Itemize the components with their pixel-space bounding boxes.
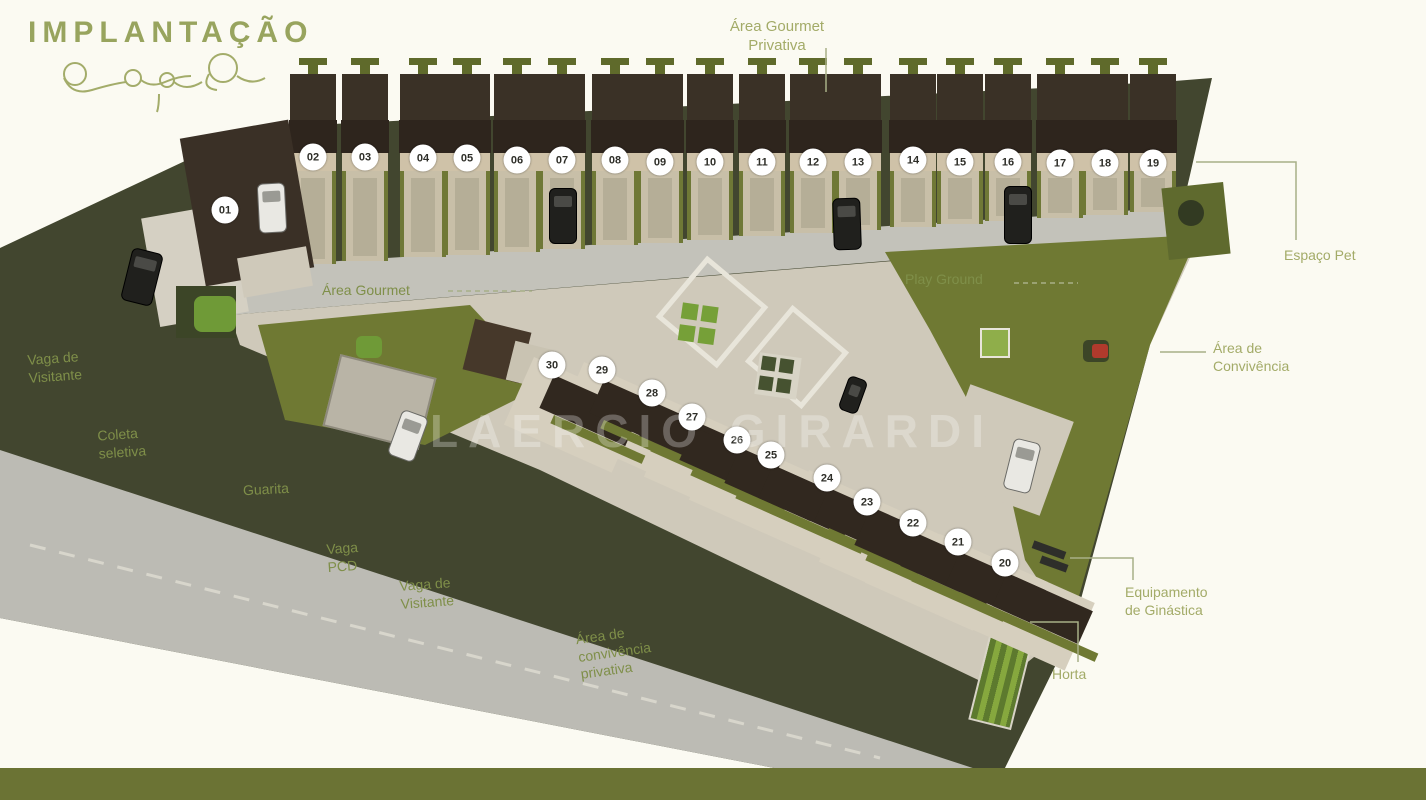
- house-roof: [1081, 120, 1129, 153]
- planter-cell: [681, 302, 699, 320]
- unit-marker-15: 15: [947, 149, 974, 176]
- label-coleta-seletiva: Coleta seletiva: [97, 424, 147, 462]
- unit-marker-30: 30: [539, 352, 566, 379]
- parking-slot: [698, 178, 722, 235]
- tree-icon: [1178, 200, 1204, 226]
- house-patio: [592, 74, 638, 120]
- unit-marker-07: 07: [549, 147, 576, 174]
- sandbox-cell: [761, 356, 777, 372]
- bush-icon: [194, 296, 236, 332]
- car-icon: [1004, 186, 1032, 244]
- unit-marker-22: 22: [900, 510, 927, 537]
- house-patio: [637, 74, 683, 120]
- car-window: [837, 206, 855, 218]
- unit-marker-19: 19: [1140, 150, 1167, 177]
- sandbox-cell: [758, 375, 774, 391]
- unit-marker-06: 06: [504, 147, 531, 174]
- house-patio: [400, 74, 446, 120]
- planter-cell: [678, 324, 696, 342]
- unit-marker-02: 02: [300, 144, 327, 171]
- bush-icon: [356, 336, 382, 358]
- car-icon: [257, 182, 288, 233]
- leader-ginastica: [1070, 558, 1133, 580]
- house-patio: [687, 74, 733, 120]
- parking-slot: [353, 178, 377, 256]
- car-window: [1009, 194, 1027, 205]
- label-play-ground: Play Ground: [905, 271, 983, 289]
- car-window: [401, 418, 422, 434]
- unit-marker-16: 16: [995, 149, 1022, 176]
- parking-slot: [901, 178, 925, 222]
- label-equipamento-ginastica: Equipamento de Ginástica: [1125, 584, 1208, 619]
- parking-slot: [948, 178, 972, 219]
- house-patio: [890, 74, 936, 120]
- unit-marker-14: 14: [900, 147, 927, 174]
- car-icon: [832, 198, 862, 251]
- street-lane-dashes: [30, 545, 880, 758]
- ornament-flourish: [55, 52, 285, 122]
- label-area-convivencia: Área de Convivência: [1213, 340, 1289, 375]
- house-patio: [937, 74, 983, 120]
- play-equipment-icon: [1092, 344, 1108, 358]
- unit-marker-01: 01: [212, 197, 239, 224]
- house-patio: [1037, 74, 1083, 120]
- unit-marker-17: 17: [1047, 150, 1074, 177]
- house-patio: [494, 74, 540, 120]
- house-patio: [790, 74, 836, 120]
- house-patio: [1130, 74, 1176, 120]
- unit-marker-09: 09: [647, 149, 674, 176]
- page-title: IMPLANTAÇÃO: [28, 16, 313, 50]
- car-window: [262, 191, 281, 203]
- unit-marker-04: 04: [410, 145, 437, 172]
- parking-slot: [411, 178, 435, 252]
- house-patio: [835, 74, 881, 120]
- parking-slot: [648, 178, 672, 238]
- house-patio: [739, 74, 785, 120]
- watermark: LAERCIO GIRARDI: [430, 404, 1426, 458]
- planting-beds: [677, 302, 722, 347]
- bottom-bar: [0, 768, 1426, 800]
- label-area-gourmet: Área Gourmet: [322, 282, 410, 300]
- house-patio: [290, 74, 336, 120]
- unit-marker-10: 10: [697, 149, 724, 176]
- planter-cell: [697, 327, 715, 345]
- label-horta: Horta: [1052, 666, 1086, 684]
- house-patio: [342, 74, 388, 120]
- unit-marker-24: 24: [814, 465, 841, 492]
- label-guarita: Guarita: [243, 480, 290, 500]
- gym-equipment-icon: [1032, 540, 1067, 559]
- car-window: [848, 384, 861, 398]
- label-vaga-visitante-1: Vaga de Visitante: [27, 348, 83, 387]
- unit-marker-28: 28: [639, 380, 666, 407]
- unit-marker-08: 08: [602, 147, 629, 174]
- label-vaga-visitante-2: Vaga de Visitante: [399, 574, 455, 613]
- unit-marker-12: 12: [800, 149, 827, 176]
- white-corner: [0, 618, 795, 772]
- unit-marker-13: 13: [845, 149, 872, 176]
- unit-marker-20: 20: [992, 550, 1019, 577]
- unit-marker-05: 05: [454, 145, 481, 172]
- parking-slot: [505, 178, 529, 247]
- house-roof: [1036, 120, 1084, 153]
- label-espaco-pet: Espaço Pet: [1284, 247, 1356, 265]
- car-icon: [549, 188, 577, 244]
- parking-slot: [801, 178, 825, 228]
- house-patio: [985, 74, 1031, 120]
- unit-marker-03: 03: [352, 144, 379, 171]
- site-plan: 0102030405060708091011121314151617181930…: [0, 0, 1426, 800]
- unit-marker-21: 21: [945, 529, 972, 556]
- car-window: [133, 256, 157, 272]
- house-roof: [1129, 120, 1177, 153]
- label-area-convivencia-privativa: Área de convivência privativa: [575, 621, 655, 683]
- parking-slot: [1048, 178, 1072, 213]
- sandbox-cell: [776, 378, 792, 394]
- house-patio: [539, 74, 585, 120]
- parking-slot: [1093, 178, 1117, 210]
- unit-marker-23: 23: [854, 489, 881, 516]
- house-patio: [444, 74, 490, 120]
- unit-marker-29: 29: [589, 357, 616, 384]
- sandbox-cell: [779, 358, 795, 374]
- unit-marker-11: 11: [749, 149, 776, 176]
- parking-slot: [750, 178, 774, 231]
- planter-cell: [701, 305, 719, 323]
- parking-slot: [455, 178, 479, 250]
- sandbox-grid: [754, 352, 801, 399]
- label-vaga-pcd: Vaga PCD: [326, 539, 360, 576]
- label-area-gourmet-privativa: Área Gourmet Privativa: [692, 18, 862, 56]
- house-patio: [1082, 74, 1128, 120]
- car-window: [554, 196, 572, 207]
- unit-marker-18: 18: [1092, 150, 1119, 177]
- bush-icon: [980, 328, 1010, 358]
- parking-slot: [603, 178, 627, 240]
